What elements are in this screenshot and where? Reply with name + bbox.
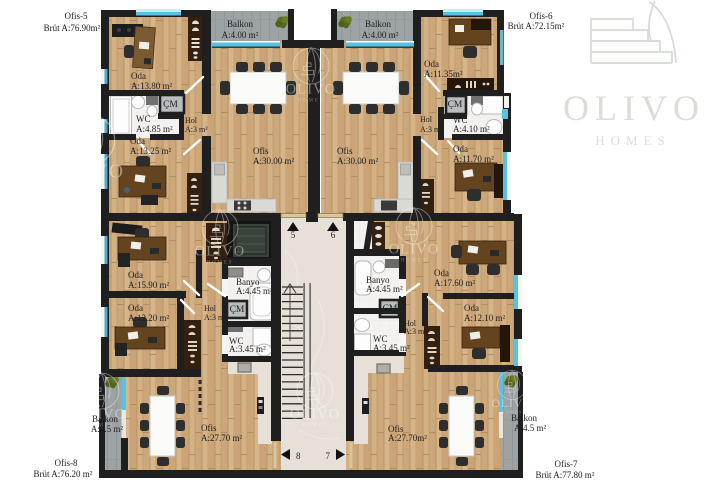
- svg-text:Balkon: Balkon: [365, 19, 391, 29]
- svg-text:A:11.35m²: A:11.35m²: [424, 69, 463, 79]
- svg-text:A:3.45 m²: A:3.45 m²: [373, 343, 410, 353]
- svg-text:Oda: Oda: [128, 303, 143, 313]
- svg-text:Balkon: Balkon: [511, 413, 537, 423]
- svg-text:Ofis: Ofis: [201, 423, 217, 433]
- svg-text:OLIVO: OLIVO: [563, 88, 705, 128]
- svg-text:ÇM: ÇM: [163, 100, 178, 110]
- svg-text:Brüt A:77.80 m²: Brüt A:77.80 m²: [536, 470, 595, 480]
- svg-text:A:11.70 m²: A:11.70 m²: [453, 154, 494, 164]
- svg-text:Ofis-7: Ofis-7: [555, 459, 578, 469]
- svg-text:Brüt A:76.20 m²: Brüt A:76.20 m²: [34, 469, 93, 479]
- svg-text:A:4.00 m²: A:4.00 m²: [222, 30, 259, 40]
- svg-text:Oda: Oda: [128, 270, 143, 280]
- svg-text:HOMES: HOMES: [595, 133, 671, 148]
- svg-text:A:30.00 m²: A:30.00 m²: [253, 156, 295, 166]
- svg-text:Oda: Oda: [131, 71, 146, 81]
- svg-text:A:13.25 m²: A:13.25 m²: [130, 146, 172, 156]
- svg-text:7: 7: [326, 451, 331, 461]
- svg-text:A:27.70m²: A:27.70m²: [388, 433, 427, 443]
- svg-text:A:3 m²: A:3 m²: [185, 125, 208, 134]
- svg-text:A:4.00 m²: A:4.00 m²: [362, 30, 399, 40]
- svg-text:A:4.85 m²: A:4.85 m²: [136, 124, 173, 134]
- svg-text:A:30.00 m²: A:30.00 m²: [337, 156, 379, 166]
- svg-text:A:17.60 m²: A:17.60 m²: [434, 278, 476, 288]
- svg-text:A:15.90 m²: A:15.90 m²: [128, 280, 170, 290]
- svg-text:Oda: Oda: [434, 268, 449, 278]
- svg-text:A:3 m²: A:3 m²: [404, 327, 427, 336]
- svg-text:A:3 m²: A:3 m²: [420, 125, 443, 134]
- svg-text:Ofis: Ofis: [337, 146, 353, 156]
- svg-text:Ofis-8: Ofis-8: [55, 458, 78, 468]
- svg-text:Balkon: Balkon: [227, 19, 253, 29]
- svg-text:Brüt A:76.90m²: Brüt A:76.90m²: [44, 23, 101, 33]
- svg-text:A:4.10 m²: A:4.10 m²: [453, 124, 490, 134]
- svg-text:A:3.45 m²: A:3.45 m²: [229, 344, 266, 354]
- svg-text:ÇM: ÇM: [383, 304, 398, 314]
- svg-text:5: 5: [291, 230, 296, 240]
- svg-text:ÇM: ÇM: [230, 305, 245, 315]
- svg-text:Oda: Oda: [464, 303, 479, 313]
- svg-text:Oda: Oda: [130, 136, 145, 146]
- svg-text:Hol: Hol: [185, 116, 198, 125]
- svg-text:Hol: Hol: [420, 115, 433, 124]
- svg-text:Ofis-5: Ofis-5: [65, 11, 88, 21]
- svg-text:8: 8: [296, 451, 301, 461]
- svg-text:Hol: Hol: [204, 304, 217, 313]
- svg-text:Ofis: Ofis: [253, 146, 269, 156]
- svg-text:A:3 m²: A:3 m²: [204, 313, 227, 322]
- svg-text:A:4.45 m²: A:4.45 m²: [366, 284, 403, 294]
- svg-text:WC: WC: [136, 114, 151, 124]
- svg-text:Oda: Oda: [424, 59, 439, 69]
- svg-text:A:12.10 m²: A:12.10 m²: [464, 313, 506, 323]
- svg-text:Ofis-6: Ofis-6: [530, 11, 553, 21]
- svg-text:6: 6: [331, 230, 336, 240]
- svg-text:A:4.45 m²: A:4.45 m²: [236, 286, 273, 296]
- svg-text:A:13.80 m²: A:13.80 m²: [131, 81, 173, 91]
- svg-text:A:4.5 m²: A:4.5 m²: [514, 423, 547, 433]
- svg-text:Brüt A:72.15m²: Brüt A:72.15m²: [508, 21, 565, 31]
- svg-text:ÇM: ÇM: [448, 100, 463, 110]
- svg-text:A:27.70 m²: A:27.70 m²: [201, 433, 243, 443]
- svg-text:Oda: Oda: [453, 144, 468, 154]
- svg-text:A:12.20 m²: A:12.20 m²: [128, 313, 170, 323]
